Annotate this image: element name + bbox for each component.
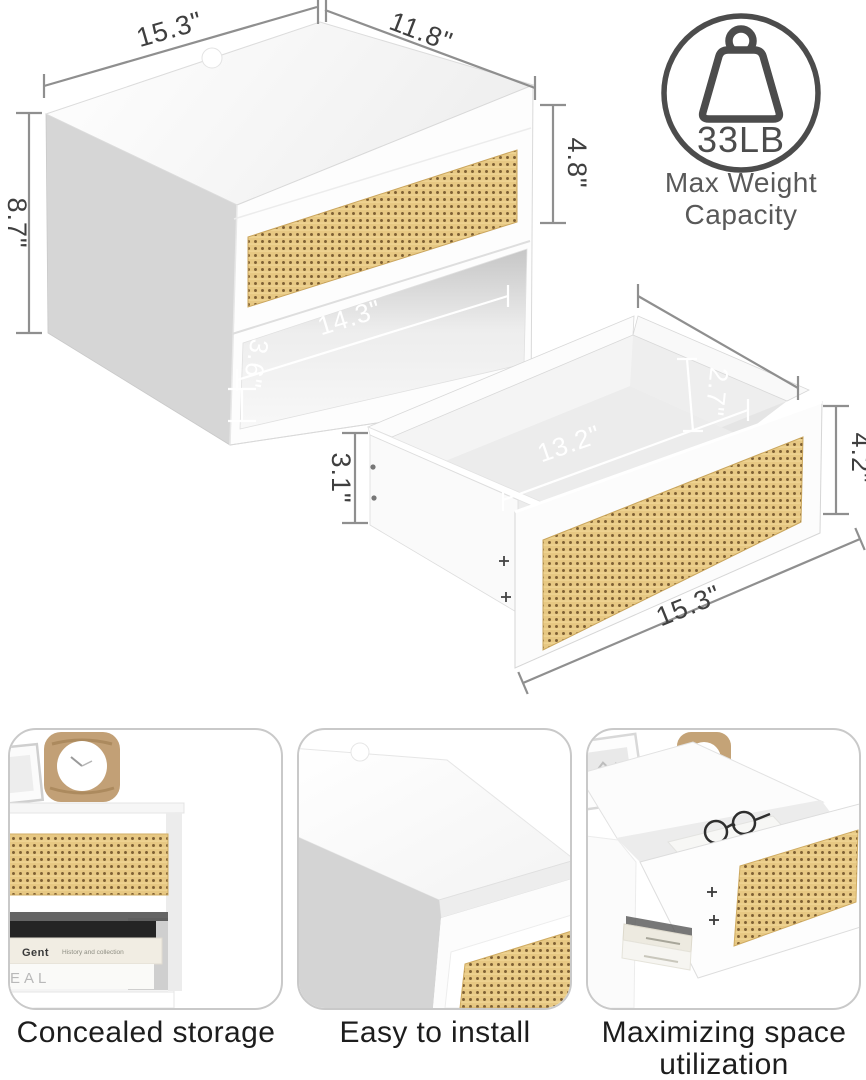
rattan-panel bbox=[10, 834, 168, 895]
weight-caption-line2: Capacity bbox=[685, 199, 798, 230]
dim-drawer-side-height: 3.1" bbox=[326, 452, 356, 503]
caption-concealed-storage: Concealed storage bbox=[2, 1017, 290, 1049]
magazine-text: EAL bbox=[10, 970, 50, 987]
dim-drawer-front-height: 4.8" bbox=[562, 137, 592, 188]
dimension-diagram: 15.3" 11.8" 8.7" 4.8" 14.3" 3.6" 33LB Ma… bbox=[0, 0, 866, 720]
book-title-text: Gent bbox=[22, 947, 49, 959]
easy-install-photo bbox=[299, 730, 570, 1008]
feature-card-concealed-storage: Gent History and collection EAL bbox=[8, 728, 283, 1010]
caption-easy-to-install: Easy to install bbox=[291, 1017, 579, 1049]
cable-notch bbox=[202, 48, 222, 68]
weight-caption-line1: Max Weight bbox=[665, 167, 817, 198]
assembled-nightstand-illustration bbox=[46, 22, 533, 445]
nightstand-front: Gent History and collection EAL bbox=[10, 803, 184, 1008]
screw-dot bbox=[370, 464, 375, 469]
feature-card-easy-to-install bbox=[297, 728, 572, 1010]
weight-value: 33LB bbox=[697, 119, 785, 160]
nightstand-open-drawer bbox=[588, 742, 859, 1008]
feature-card-space-utilization bbox=[586, 728, 861, 1010]
caption-space-utilization: Maximizing space utilization bbox=[580, 1017, 866, 1080]
concealed-storage-photo: Gent History and collection EAL bbox=[10, 730, 281, 1008]
wooden-clock bbox=[44, 732, 120, 802]
open-drawer-photo bbox=[588, 730, 859, 1008]
dim-side-height: 8.7" bbox=[2, 197, 32, 248]
weight-capacity-badge: 33LB Max Weight Capacity bbox=[664, 16, 818, 230]
cable-notch bbox=[351, 743, 369, 761]
kettlebell-weight-icon bbox=[703, 29, 780, 119]
dim-drawer-front-height: 4.2" bbox=[846, 432, 866, 483]
book-subtitle-text: History and collection bbox=[62, 949, 124, 956]
dark-book bbox=[10, 921, 156, 938]
screw-dot bbox=[371, 495, 376, 500]
photo-frame bbox=[10, 744, 43, 804]
dim-top-width: 15.3" bbox=[133, 6, 206, 53]
dim-drawer-inner-depth: 2.7" bbox=[699, 366, 734, 418]
tabletop-corner bbox=[299, 743, 570, 1008]
product-dimension-infographic: 15.3" 11.8" 8.7" 4.8" 14.3" 3.6" 33LB Ma… bbox=[0, 0, 866, 1080]
